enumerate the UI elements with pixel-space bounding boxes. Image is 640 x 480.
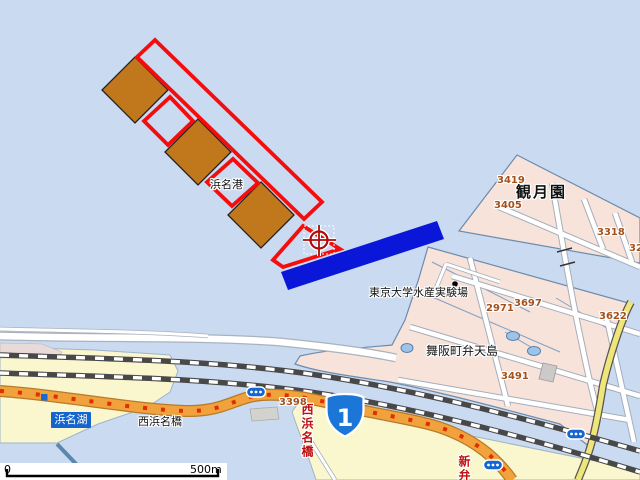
parcel-number: 3622 — [599, 311, 627, 322]
parcel-number: 3318 — [597, 227, 625, 238]
label-bridge-vertical: 西浜名橋 — [299, 403, 316, 479]
label-hamana-port: 浜名港 — [210, 176, 243, 192]
signal-icon — [484, 460, 503, 470]
label-nishihamana-bridge: 西浜名橋 — [138, 413, 182, 429]
signal-icon — [247, 387, 266, 397]
label-bentenjima: 舞阪町弁天島 — [426, 342, 498, 359]
route-number: 1 — [337, 404, 354, 432]
parcel-number: 2971 — [486, 303, 514, 314]
parcel-number: 3405 — [494, 200, 522, 211]
label-lake-hamana: 浜名湖 — [51, 412, 91, 428]
parcel-number: 3419 — [497, 175, 525, 186]
scale-end-label: 500m — [190, 463, 222, 476]
parcel-number: 32 — [629, 243, 640, 254]
signal-icon — [567, 429, 586, 439]
parcel-number: 3491 — [501, 371, 529, 382]
map-layers: 1 — [0, 0, 640, 480]
label-experiment-station: 東京大学水産実験場 — [369, 284, 468, 300]
scale-start-label: 0 — [4, 463, 11, 476]
signal-dot-icon — [41, 394, 48, 401]
parcel-number: 3398 — [279, 397, 307, 408]
parcel-number: 3697 — [514, 298, 542, 309]
map-canvas[interactable]: 1 浜名港 観月園 東京大学水産実験場 舞阪町弁天島 西浜名橋 浜名湖 西浜名橋… — [0, 0, 640, 480]
label-shinben: 新弁 — [456, 455, 473, 480]
